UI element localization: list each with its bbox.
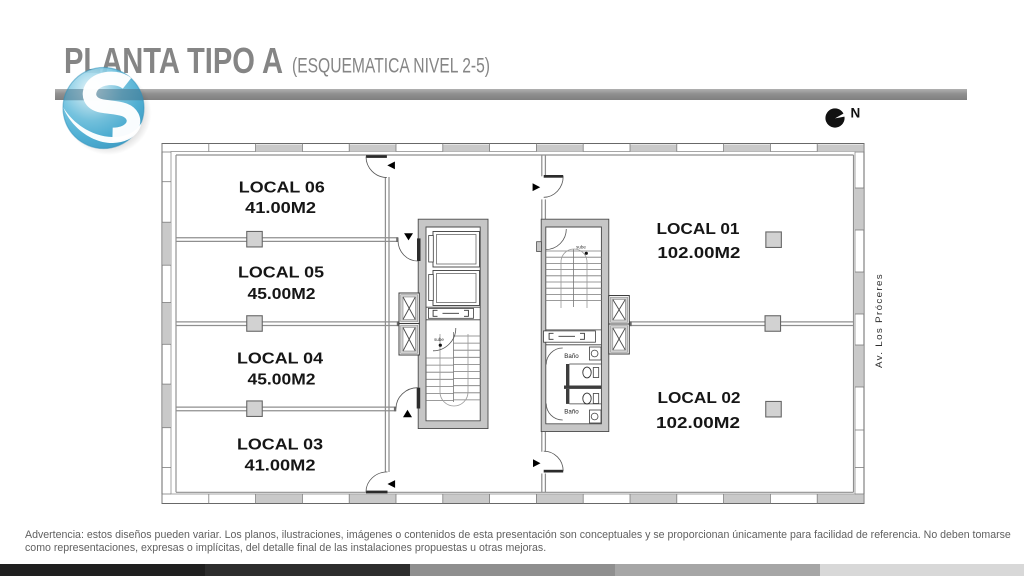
- svg-text:N: N: [851, 106, 861, 121]
- svg-text:(ESQUEMATICA NIVEL 2-5): (ESQUEMATICA NIVEL 2-5): [292, 55, 490, 78]
- svg-text:102.00M2: 102.00M2: [656, 415, 740, 432]
- svg-text:Av. Los Próceres: Av. Los Próceres: [874, 273, 885, 368]
- svg-text:sube: sube: [576, 245, 586, 250]
- svg-text:LOCAL 05: LOCAL 05: [238, 264, 324, 281]
- svg-text:LOCAL 04: LOCAL 04: [237, 350, 323, 367]
- svg-text:LOCAL 03: LOCAL 03: [237, 437, 323, 454]
- svg-text:102.00M2: 102.00M2: [657, 245, 740, 262]
- svg-text:Baño: Baño: [564, 409, 579, 416]
- svg-text:LOCAL 06: LOCAL 06: [239, 180, 325, 197]
- svg-text:41.00M2: 41.00M2: [245, 200, 316, 217]
- svg-text:45.00M2: 45.00M2: [248, 371, 316, 388]
- svg-text:LOCAL 02: LOCAL 02: [658, 390, 741, 407]
- svg-text:LOCAL 01: LOCAL 01: [657, 221, 740, 238]
- svg-text:Baño: Baño: [564, 353, 579, 360]
- svg-text:41.00M2: 41.00M2: [245, 458, 316, 475]
- svg-text:sube: sube: [434, 337, 444, 342]
- svg-text:45.00M2: 45.00M2: [248, 286, 316, 303]
